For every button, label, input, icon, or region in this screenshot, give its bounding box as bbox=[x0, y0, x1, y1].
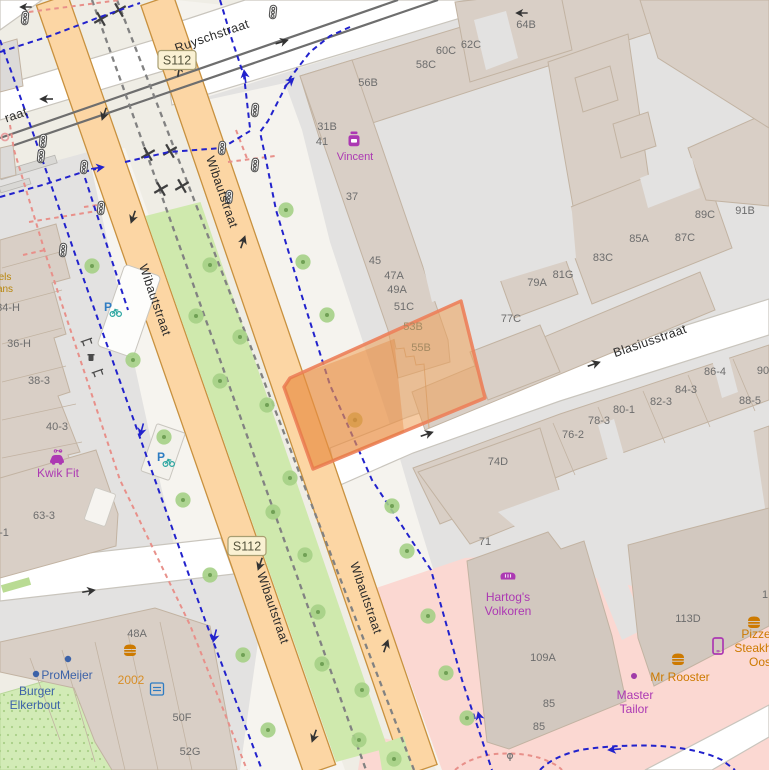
svg-text:ans: ans bbox=[0, 284, 13, 295]
svg-text:63-3: 63-3 bbox=[33, 510, 55, 522]
svg-text:76-2: 76-2 bbox=[562, 429, 584, 441]
svg-text:Kwik Fit: Kwik Fit bbox=[37, 466, 80, 480]
svg-text:86-4: 86-4 bbox=[704, 366, 726, 378]
svg-text:84-3: 84-3 bbox=[675, 384, 697, 396]
svg-text:91B: 91B bbox=[735, 205, 755, 217]
svg-text:S112: S112 bbox=[163, 53, 191, 67]
svg-text:37: 37 bbox=[346, 191, 358, 203]
svg-text:113D: 113D bbox=[675, 613, 701, 625]
svg-text:-1: -1 bbox=[0, 527, 9, 539]
svg-text:41: 41 bbox=[316, 136, 328, 148]
svg-text:85: 85 bbox=[543, 698, 555, 710]
svg-text:83C: 83C bbox=[593, 252, 613, 264]
svg-text:2002: 2002 bbox=[118, 673, 145, 687]
svg-text:58C: 58C bbox=[416, 59, 436, 71]
svg-text:48A: 48A bbox=[127, 628, 147, 640]
svg-text:1: 1 bbox=[762, 589, 768, 601]
svg-text:45: 45 bbox=[369, 255, 381, 267]
svg-text:56B: 56B bbox=[358, 77, 378, 89]
svg-text:Volkoren: Volkoren bbox=[485, 604, 532, 618]
svg-text:89C: 89C bbox=[695, 209, 715, 221]
svg-text:82-3: 82-3 bbox=[650, 396, 672, 408]
svg-text:Oos: Oos bbox=[749, 655, 769, 669]
svg-text:Tailor: Tailor bbox=[620, 702, 649, 716]
svg-text:Vincent: Vincent bbox=[337, 151, 374, 163]
svg-text:Mr Rooster: Mr Rooster bbox=[650, 670, 709, 684]
svg-text:ProMeijer: ProMeijer bbox=[41, 668, 92, 682]
svg-text:71: 71 bbox=[479, 536, 491, 548]
svg-text:51C: 51C bbox=[394, 301, 414, 313]
svg-text:47A: 47A bbox=[384, 270, 404, 282]
svg-text:88-5: 88-5 bbox=[739, 395, 761, 407]
svg-text:77C: 77C bbox=[501, 313, 521, 325]
svg-text:53B: 53B bbox=[403, 321, 423, 333]
svg-text:85: 85 bbox=[533, 721, 545, 733]
svg-text:85A: 85A bbox=[629, 233, 649, 245]
svg-text:90: 90 bbox=[757, 365, 769, 377]
svg-text:49A: 49A bbox=[387, 284, 407, 296]
svg-text:Hartog's: Hartog's bbox=[486, 590, 530, 604]
svg-text:87C: 87C bbox=[675, 232, 695, 244]
svg-text:109A: 109A bbox=[530, 652, 556, 664]
svg-text:81G: 81G bbox=[553, 269, 574, 281]
svg-text:36-H: 36-H bbox=[7, 338, 31, 350]
svg-text:79A: 79A bbox=[527, 277, 547, 289]
svg-text:Elkerbout: Elkerbout bbox=[10, 698, 61, 712]
svg-text:40-3: 40-3 bbox=[46, 421, 68, 433]
svg-text:Pizze: Pizze bbox=[741, 627, 769, 641]
svg-text:62C: 62C bbox=[461, 39, 481, 51]
svg-text:80-1: 80-1 bbox=[613, 404, 635, 416]
svg-text:52G: 52G bbox=[180, 746, 201, 758]
svg-text:34-H: 34-H bbox=[0, 302, 20, 314]
svg-text:Master: Master bbox=[617, 688, 654, 702]
svg-text:74D: 74D bbox=[488, 456, 508, 468]
svg-text:50F: 50F bbox=[173, 712, 192, 724]
svg-text:Steakh: Steakh bbox=[734, 641, 769, 655]
svg-text:els: els bbox=[0, 272, 11, 283]
svg-text:78-3: 78-3 bbox=[588, 415, 610, 427]
svg-text:31B: 31B bbox=[317, 121, 337, 133]
svg-text:55B: 55B bbox=[411, 342, 431, 354]
svg-text:64B: 64B bbox=[516, 19, 536, 31]
svg-text:38-3: 38-3 bbox=[28, 375, 50, 387]
svg-text:Burger: Burger bbox=[19, 684, 55, 698]
svg-text:S112: S112 bbox=[233, 539, 261, 553]
svg-text:60C: 60C bbox=[436, 45, 456, 57]
